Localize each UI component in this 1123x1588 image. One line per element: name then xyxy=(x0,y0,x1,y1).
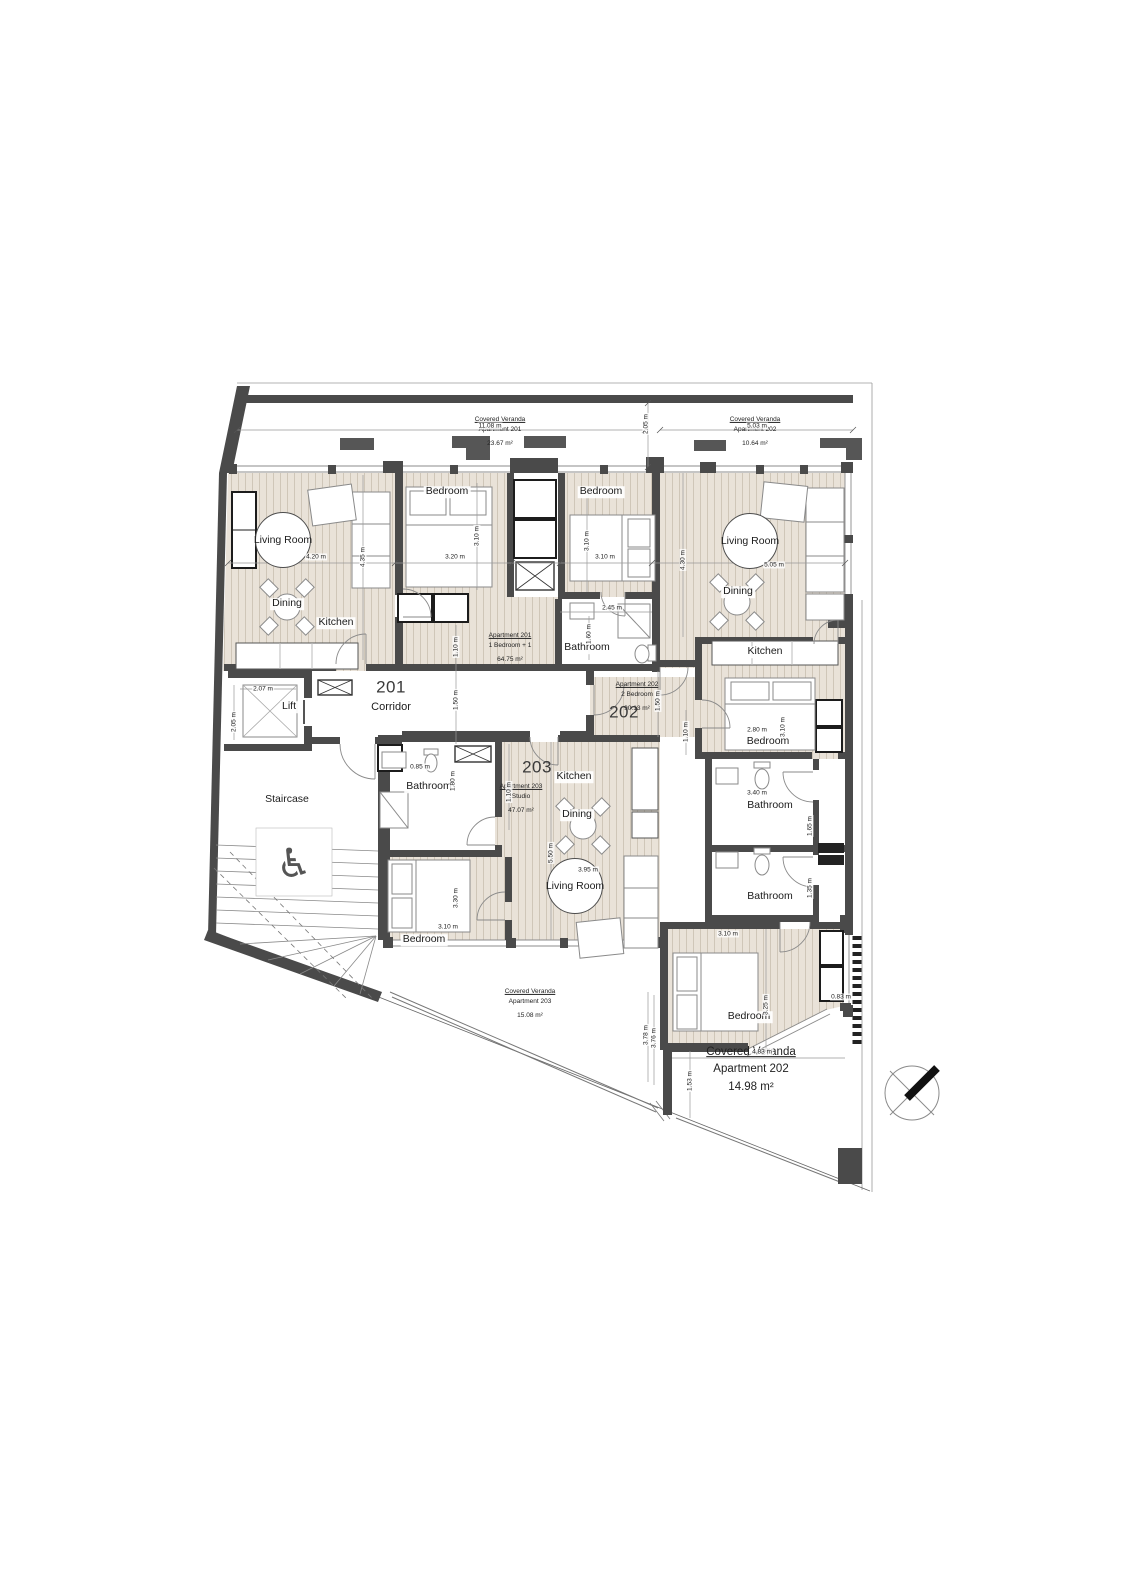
dim-living201-height: 4.35 m xyxy=(359,546,366,568)
dim-bedroom201b-height: 3.10 m xyxy=(583,530,590,552)
apartment-type: 2 Bedroom xyxy=(616,690,659,700)
veranda-area: 15.08 m² xyxy=(505,1011,556,1021)
room-label-living-room-201: Living Room xyxy=(255,512,311,568)
room-label-kitchen-202: Kitchen xyxy=(745,646,784,658)
wheelchair-accessible-icon: ♿ xyxy=(276,841,312,887)
dim-bedroom201a-width: 3.20 m xyxy=(444,553,466,560)
dim-hall202b: 1.10 m xyxy=(682,721,689,743)
dim-living202-width: 5.05 m xyxy=(763,561,785,568)
room-label-bathroom-202a: Bathroom xyxy=(745,800,795,812)
dim-bedroom201b-width: 3.10 m xyxy=(594,553,616,560)
dim-bathroom201-height: 1.60 m xyxy=(585,623,592,645)
apartment-number-202: 202 xyxy=(609,704,639,723)
dim-bedroom201a-height: 3.10 m xyxy=(473,525,480,547)
dim-bathroom202b-height: 1.35 m xyxy=(806,877,813,899)
veranda-apartment: Apartment 202 xyxy=(706,1061,796,1078)
dim-veranda-depth: 2.05 m xyxy=(642,413,649,435)
dim-bedroom202c-width: 3.10 m xyxy=(717,930,739,937)
dim-hall202a: 1.50 m xyxy=(654,690,661,712)
dim-hall203: 1.10 m xyxy=(505,781,512,803)
apartment-title: Apartment 201 xyxy=(489,631,532,641)
apartment-number-201: 201 xyxy=(376,679,406,698)
dim-studio203-height: 5.50 m xyxy=(547,842,554,864)
corridor-label: Corridor xyxy=(371,701,411,713)
room-label-bedroom-203: Bedroom xyxy=(401,934,448,946)
living-room-text: Living Room xyxy=(721,535,779,547)
dim-veranda202-width: 5.03 m xyxy=(746,422,768,429)
apartment-201-info: Apartment 201 1 Bedroom + 1 64.75 m² xyxy=(489,631,532,665)
floor-plan-drawing: ♿ xyxy=(0,0,1123,1588)
dim-lift-width: 2.07 m xyxy=(252,685,274,692)
dim-hall201: 1.10 m xyxy=(452,636,459,658)
room-label-dining-203: Dining xyxy=(560,809,594,821)
room-label-bathroom-203: Bathroom xyxy=(404,781,454,793)
apartment-title: Apartment 202 xyxy=(616,680,659,690)
room-label-lift: Lift xyxy=(280,701,298,713)
dim-bathroom203-width: 0.85 m xyxy=(409,763,431,770)
dim-bedroom202a-width: 2.80 m xyxy=(746,726,768,733)
veranda-201-info: Covered Veranda Apartment 201 23.67 m² xyxy=(475,415,526,449)
room-label-bedroom-201a: Bedroom xyxy=(424,486,471,498)
north-arrow-icon xyxy=(885,1066,939,1120)
dim-bedroom203-height: 3.30 m xyxy=(452,887,459,909)
apartment-type: 1 Bedroom + 1 xyxy=(489,641,532,651)
living-room-text: Living Room xyxy=(546,880,604,892)
dim-living203-width: 3.95 m xyxy=(577,866,599,873)
room-label-bedroom-202a: Bedroom xyxy=(745,736,792,748)
veranda-apartment: Apartment 203 xyxy=(505,997,556,1007)
veranda-202-top-info: Covered Veranda Apartment 202 10.64 m² xyxy=(730,415,781,449)
dim-veranda202-bottom-width: 4.83 m xyxy=(751,1048,773,1055)
dim-bedroom202a-height: 3.10 m xyxy=(779,716,786,738)
dim-veranda203-d2: 3.76 m xyxy=(650,1027,657,1049)
room-label-kitchen-201: Kitchen xyxy=(316,617,355,629)
veranda-area: 14.98 m² xyxy=(706,1079,796,1096)
dim-bathroom203-height: 1.80 m xyxy=(449,770,456,792)
floor-plan-sheet: ♿ xyxy=(0,0,1123,1588)
dim-bedroom202c-height: 3.25 m xyxy=(762,994,769,1016)
apartment-area: 64.75 m² xyxy=(489,655,532,665)
room-label-staircase: Staircase xyxy=(263,794,311,806)
dim-living202-height: 4.30 m xyxy=(679,549,686,571)
dim-veranda201-width: 11.08 m xyxy=(477,422,502,429)
apartment-area: 47.07 m² xyxy=(500,806,543,816)
dim-corridor-width: 1.50 m xyxy=(452,689,459,711)
room-label-bedroom-201b: Bedroom xyxy=(578,486,625,498)
dim-bedroom202c-offset: 0.83 m xyxy=(830,993,852,1000)
veranda-203-info: Covered Veranda Apartment 203 15.08 m² xyxy=(505,987,556,1021)
veranda-area: 10.64 m² xyxy=(730,439,781,449)
room-label-dining-201: Dining xyxy=(270,598,304,610)
dim-bathroom201-width: 2.45 m xyxy=(601,604,623,611)
dim-lift-height: 2.05 m xyxy=(230,711,237,733)
living-room-text: Living Room xyxy=(254,534,312,546)
staircase-steps: ♿ xyxy=(214,828,378,1000)
dim-veranda202-bottom-height: 1.53 m xyxy=(686,1070,693,1092)
veranda-title: Covered Veranda xyxy=(505,987,556,997)
room-label-kitchen-203: Kitchen xyxy=(554,771,593,783)
apartment-number-203: 203 xyxy=(522,759,552,778)
dim-living201-width: 4.20 m xyxy=(305,553,327,560)
dim-bathroom202-width: 3.40 m xyxy=(746,789,768,796)
dim-bedroom203-width: 3.10 m xyxy=(437,923,459,930)
veranda-planters xyxy=(340,436,862,460)
dim-veranda203-d1: 3.78 m xyxy=(642,1024,649,1046)
room-label-bathroom-202b: Bathroom xyxy=(745,891,795,903)
dim-bathroom202a-height: 1.65 m xyxy=(806,815,813,837)
room-label-dining-202: Dining xyxy=(721,586,755,598)
veranda-area: 23.67 m² xyxy=(475,439,526,449)
